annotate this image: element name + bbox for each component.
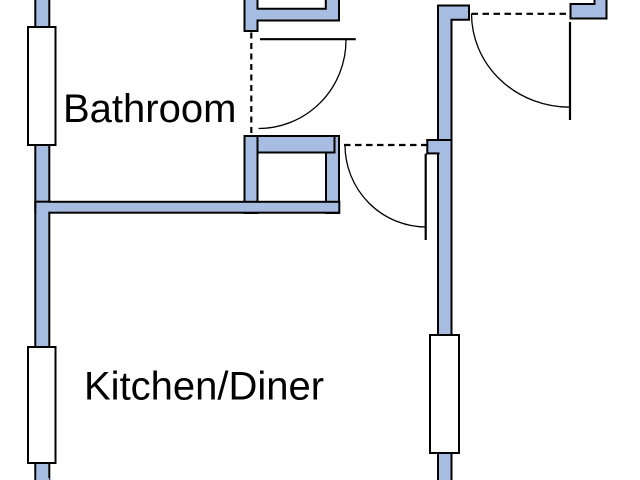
svg-text:Bathroom: Bathroom [63,87,236,131]
svg-text:Kitchen/Diner: Kitchen/Diner [84,365,324,409]
